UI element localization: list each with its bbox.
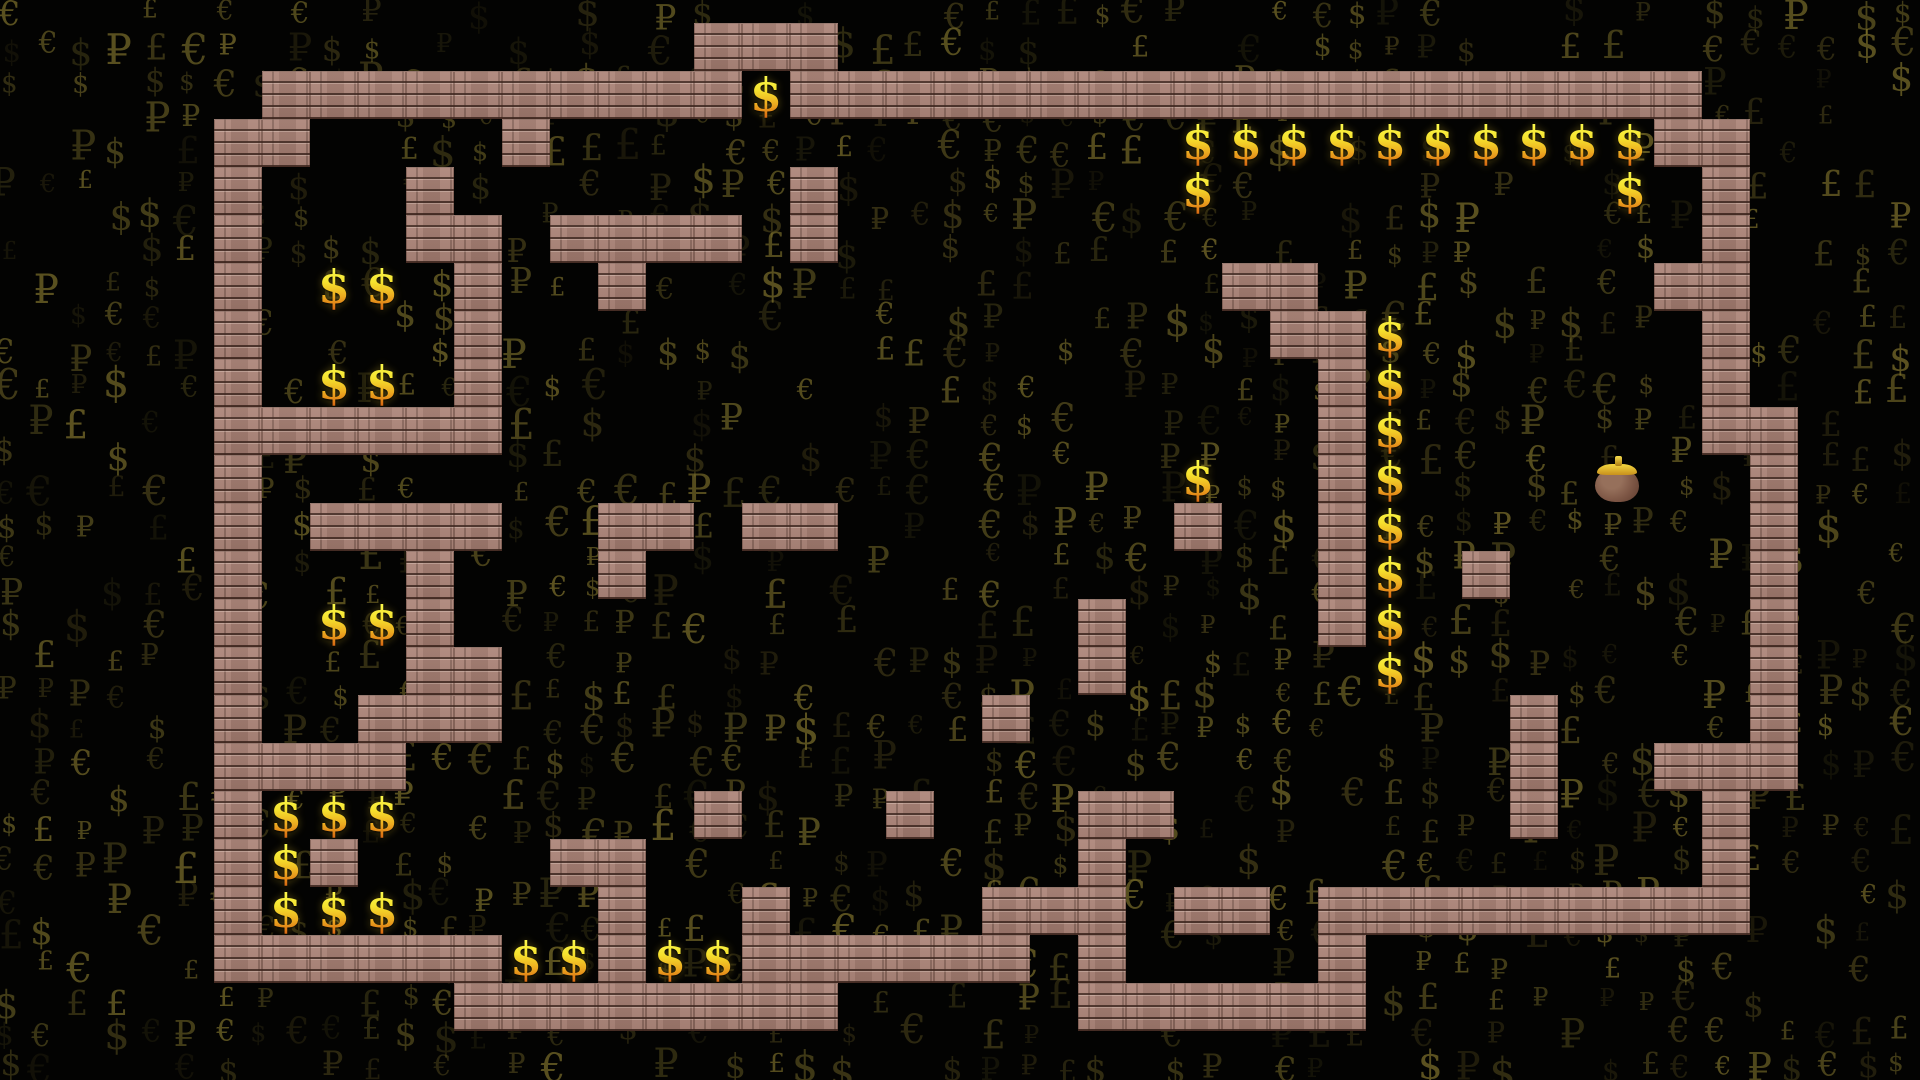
wall-tile [1702, 743, 1750, 791]
coin: $ [1414, 119, 1462, 167]
wall-tile [598, 71, 646, 119]
wall-tile [454, 359, 502, 407]
wall-tile [1318, 407, 1366, 455]
coin: $ [502, 935, 550, 983]
wall-tile [262, 119, 310, 167]
coin: $ [310, 263, 358, 311]
wall-tile [310, 407, 358, 455]
coin: $ [1366, 551, 1414, 599]
wall-tile [1078, 71, 1126, 119]
wall-tile [1078, 647, 1126, 695]
wall-tile [1750, 743, 1798, 791]
wall-tile [886, 791, 934, 839]
wall-tile [1126, 983, 1174, 1031]
wall-tile [406, 503, 454, 551]
coin: $ [262, 791, 310, 839]
wall-tile [550, 983, 598, 1031]
wall-tile [742, 887, 790, 935]
wall-tile [1126, 71, 1174, 119]
coin: $ [1174, 455, 1222, 503]
wall-tile [214, 119, 262, 167]
wall-tile [1078, 599, 1126, 647]
wall-tile [454, 215, 502, 263]
coin: $ [1366, 503, 1414, 551]
coin: $ [358, 887, 406, 935]
wall-tile [1174, 503, 1222, 551]
wall-tile [1318, 311, 1366, 359]
wall-tile [214, 839, 262, 887]
wall-tile [1510, 791, 1558, 839]
wall-tile [694, 983, 742, 1031]
wall-tile [214, 407, 262, 455]
wall-tile [742, 23, 790, 71]
wall-tile [406, 71, 454, 119]
wall-tile [1366, 71, 1414, 119]
wall-tile [214, 695, 262, 743]
wall-tile [694, 791, 742, 839]
wall-tile [598, 551, 646, 599]
coin: $ [1366, 647, 1414, 695]
wall-tile [1318, 455, 1366, 503]
coin: $ [358, 263, 406, 311]
wall-tile [454, 407, 502, 455]
wall-tile [742, 503, 790, 551]
wall-tile [1318, 551, 1366, 599]
wall-tile [1030, 887, 1078, 935]
wall-tile [310, 503, 358, 551]
wall-tile [598, 839, 646, 887]
wall-tile [1270, 311, 1318, 359]
wall-tile [694, 23, 742, 71]
wall-tile [214, 551, 262, 599]
coin: $ [1366, 407, 1414, 455]
wall-tile [262, 71, 310, 119]
wall-tile [1318, 983, 1366, 1031]
wall-tile [214, 263, 262, 311]
wall-tile [598, 263, 646, 311]
wall-tile [502, 119, 550, 167]
wall-tile [1702, 311, 1750, 359]
wall-tile [1318, 503, 1366, 551]
wall-tile [214, 743, 262, 791]
game-viewport[interactable]: €£€€₽$$₽$$€£££$€₽€€$₽€$₽$$₽$$$€$₽£€₽₽$$₽… [0, 0, 1920, 1080]
wall-tile [214, 215, 262, 263]
coin: $ [1174, 119, 1222, 167]
wall-tile [358, 935, 406, 983]
maze-layer: $$$$$$$$$$$$$$$$$$$$$$$$$$$$$$$$$$$$$$$ [0, 0, 1920, 1080]
wall-tile [1702, 791, 1750, 839]
coin: $ [1366, 599, 1414, 647]
wall-tile [310, 71, 358, 119]
wall-tile [1318, 71, 1366, 119]
wall-tile [1462, 71, 1510, 119]
wall-tile [550, 839, 598, 887]
wall-tile [790, 215, 838, 263]
wall-tile [1702, 215, 1750, 263]
wall-tile [454, 503, 502, 551]
wall-tile [790, 503, 838, 551]
wall-tile [598, 935, 646, 983]
wall-tile [454, 263, 502, 311]
coin: $ [1510, 119, 1558, 167]
wall-tile [1750, 503, 1798, 551]
wall-tile [1414, 71, 1462, 119]
wall-tile [1318, 599, 1366, 647]
wall-tile [982, 695, 1030, 743]
coin: $ [262, 839, 310, 887]
wall-tile [646, 503, 694, 551]
wall-tile [550, 215, 598, 263]
wall-tile [1510, 695, 1558, 743]
coin: $ [358, 359, 406, 407]
wall-tile [406, 407, 454, 455]
wall-tile [1078, 887, 1126, 935]
wall-tile [1462, 887, 1510, 935]
coin: $ [1606, 119, 1654, 167]
wall-tile [454, 71, 502, 119]
wall-tile [214, 935, 262, 983]
wall-tile [742, 983, 790, 1031]
wall-tile [1654, 887, 1702, 935]
coin: $ [1366, 119, 1414, 167]
wall-tile [1222, 263, 1270, 311]
coin: $ [694, 935, 742, 983]
wall-tile [1078, 935, 1126, 983]
wall-tile [550, 71, 598, 119]
coin: $ [1222, 119, 1270, 167]
wall-tile [454, 983, 502, 1031]
wall-tile [1702, 167, 1750, 215]
wall-tile [934, 935, 982, 983]
wall-tile [1078, 983, 1126, 1031]
wall-tile [214, 311, 262, 359]
wall-tile [454, 647, 502, 695]
wall-tile [1654, 119, 1702, 167]
coin: $ [310, 359, 358, 407]
wall-tile [358, 695, 406, 743]
wall-tile [598, 503, 646, 551]
wall-tile [1750, 455, 1798, 503]
wall-tile [1750, 647, 1798, 695]
wall-tile [1174, 983, 1222, 1031]
wall-tile [1702, 887, 1750, 935]
coin: $ [646, 935, 694, 983]
wall-tile [406, 599, 454, 647]
wall-tile [406, 167, 454, 215]
wall-tile [406, 695, 454, 743]
wall-tile [790, 167, 838, 215]
wall-tile [310, 935, 358, 983]
wall-tile [790, 23, 838, 71]
wall-tile [1510, 743, 1558, 791]
coin: $ [1462, 119, 1510, 167]
coin: $ [1366, 359, 1414, 407]
wall-tile [214, 167, 262, 215]
coin: $ [310, 887, 358, 935]
coin: $ [1606, 167, 1654, 215]
wall-tile [214, 599, 262, 647]
wall-tile [982, 887, 1030, 935]
wall-tile [262, 935, 310, 983]
coin: $ [550, 935, 598, 983]
wall-tile [742, 935, 790, 983]
wall-tile [1702, 119, 1750, 167]
wall-tile [1366, 887, 1414, 935]
wall-tile [1126, 791, 1174, 839]
wall-tile [1702, 359, 1750, 407]
wall-tile [1606, 71, 1654, 119]
wall-tile [838, 935, 886, 983]
wall-tile [694, 215, 742, 263]
wall-tile [1558, 887, 1606, 935]
wall-tile [982, 935, 1030, 983]
wall-tile [214, 887, 262, 935]
wall-tile [358, 71, 406, 119]
wall-tile [790, 983, 838, 1031]
wall-tile [1510, 887, 1558, 935]
wall-tile [1702, 263, 1750, 311]
wall-tile [406, 215, 454, 263]
wall-tile [502, 983, 550, 1031]
wall-tile [646, 983, 694, 1031]
coin: $ [1270, 119, 1318, 167]
wall-tile [1750, 599, 1798, 647]
wall-tile [1270, 983, 1318, 1031]
wall-tile [1270, 71, 1318, 119]
wall-tile [1318, 887, 1366, 935]
wall-tile [358, 503, 406, 551]
wall-tile [454, 695, 502, 743]
wall-tile [886, 71, 934, 119]
coin: $ [1174, 167, 1222, 215]
wall-tile [262, 407, 310, 455]
wall-tile [1702, 839, 1750, 887]
wall-tile [1030, 71, 1078, 119]
wall-tile [214, 791, 262, 839]
wall-tile [646, 71, 694, 119]
coin: $ [1366, 455, 1414, 503]
wall-tile [358, 407, 406, 455]
coin: $ [310, 791, 358, 839]
wall-tile [1078, 791, 1126, 839]
wall-tile [214, 647, 262, 695]
wall-tile [502, 71, 550, 119]
coin: $ [742, 71, 790, 119]
wall-tile [694, 71, 742, 119]
coin: $ [358, 599, 406, 647]
wall-tile [1174, 887, 1222, 935]
wall-tile [646, 215, 694, 263]
wall-tile [1702, 407, 1750, 455]
coin: $ [262, 887, 310, 935]
wall-tile [1222, 887, 1270, 935]
wall-tile [406, 647, 454, 695]
wall-tile [598, 983, 646, 1031]
wall-tile [1750, 407, 1798, 455]
wall-tile [982, 71, 1030, 119]
wall-tile [310, 839, 358, 887]
wall-tile [1174, 71, 1222, 119]
coin: $ [310, 599, 358, 647]
wall-tile [214, 455, 262, 503]
wall-tile [1222, 983, 1270, 1031]
wall-tile [1078, 839, 1126, 887]
wall-tile [1750, 695, 1798, 743]
wall-tile [1270, 263, 1318, 311]
wall-tile [1414, 887, 1462, 935]
wall-tile [1654, 263, 1702, 311]
wall-tile [1318, 359, 1366, 407]
wall-tile [214, 359, 262, 407]
purse-knob [1615, 456, 1622, 466]
wall-tile [886, 935, 934, 983]
coin: $ [358, 791, 406, 839]
wall-tile [1750, 551, 1798, 599]
wall-tile [310, 743, 358, 791]
wall-tile [454, 935, 502, 983]
wall-tile [838, 71, 886, 119]
wall-tile [406, 935, 454, 983]
wall-tile [262, 743, 310, 791]
wall-tile [1654, 743, 1702, 791]
wall-tile [598, 215, 646, 263]
wall-tile [358, 743, 406, 791]
wall-tile [1462, 551, 1510, 599]
wall-tile [1222, 71, 1270, 119]
wall-tile [598, 887, 646, 935]
coin: $ [1366, 311, 1414, 359]
wall-tile [1558, 71, 1606, 119]
wall-tile [1318, 935, 1366, 983]
wall-tile [1606, 887, 1654, 935]
coin: $ [1318, 119, 1366, 167]
wall-tile [790, 71, 838, 119]
wall-tile [406, 551, 454, 599]
wall-tile [214, 503, 262, 551]
wall-tile [1510, 71, 1558, 119]
wall-tile [1654, 71, 1702, 119]
coin: $ [1558, 119, 1606, 167]
money-purse [1594, 455, 1642, 503]
wall-tile [934, 71, 982, 119]
wall-tile [454, 311, 502, 359]
wall-tile [790, 935, 838, 983]
